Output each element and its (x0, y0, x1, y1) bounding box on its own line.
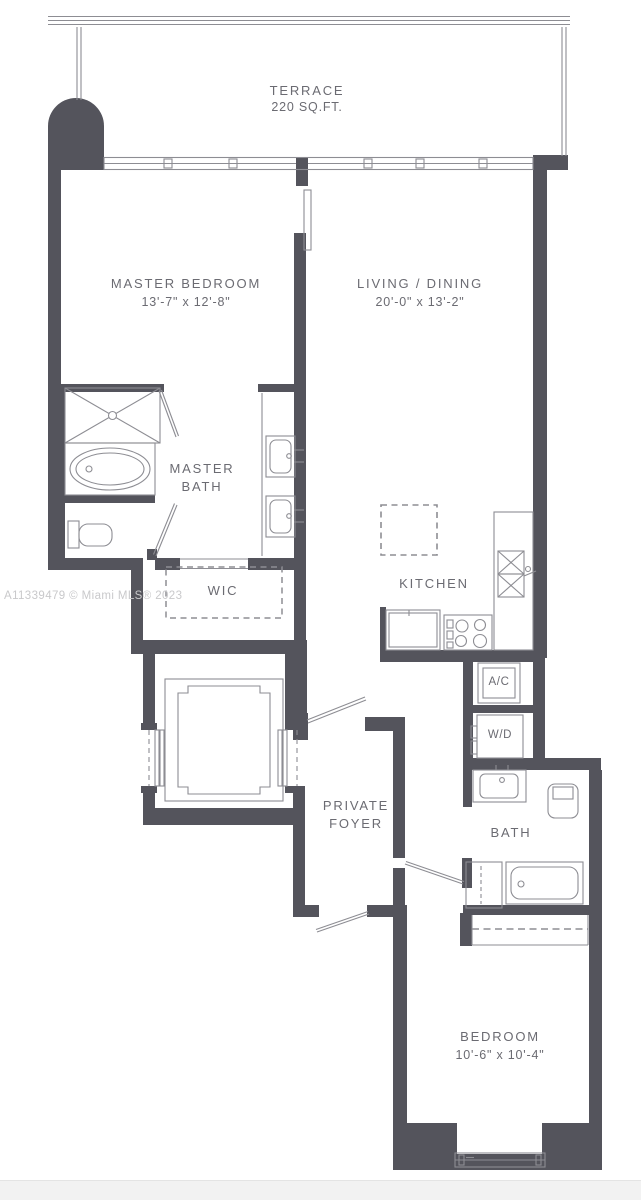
bathtub-icon (65, 443, 155, 495)
room-label-living-dining: LIVING / DINING (357, 277, 483, 290)
bedroom-dims: 10'-6" x 10'-4" (456, 1049, 545, 1062)
floorplan-page: TERRACE 220 SQ.FT. MASTER BEDROOM 13'-7"… (0, 0, 641, 1200)
door-swing-icon (154, 504, 178, 557)
master-bedroom-dims: 13'-7" x 12'-8" (142, 296, 231, 309)
room-label-ac: A/C (489, 677, 510, 689)
room-label-terrace: TERRACE (270, 84, 345, 97)
room-label-foyer-2: FOYER (329, 817, 383, 830)
sink-icon (473, 765, 526, 802)
room-label-kitchen: KITCHEN (399, 577, 469, 590)
kitchen-island-icon (381, 505, 437, 555)
column (48, 98, 104, 170)
bathtub-icon-bath (506, 862, 583, 904)
entry-door-swing-icon (307, 697, 464, 932)
elevator-icon (149, 679, 297, 801)
toilet-icon-bath (548, 784, 578, 818)
room-label-bedroom: BEDROOM (460, 1030, 540, 1043)
toilet-icon (68, 521, 112, 548)
closet-icon (472, 915, 588, 945)
kitchen-counter (494, 512, 533, 650)
stove-icon (444, 615, 492, 650)
refrigerator-icon (386, 610, 440, 650)
footer-band (0, 1180, 641, 1200)
room-label-master-bath-2: BATH (182, 480, 223, 493)
terrace-area-label: 220 SQ.FT. (271, 101, 342, 114)
room-label-foyer-1: PRIVATE (323, 799, 389, 812)
room-label-master-bath-1: MASTER (170, 462, 235, 475)
window-band (104, 158, 533, 251)
kitchen-sink-icon (498, 551, 536, 597)
walls (48, 98, 602, 1170)
room-label-wd: W/D (488, 730, 512, 742)
room-label-bath: BATH (491, 826, 532, 839)
living-dining-dims: 20'-0" x 13'-2" (376, 296, 465, 309)
mls-watermark: A11339479 © Miami MLS® 2023 (4, 591, 182, 603)
room-label-wic: WIC (208, 584, 239, 597)
shower-icon (65, 388, 179, 443)
room-label-master-bedroom: MASTER BEDROOM (111, 277, 261, 290)
